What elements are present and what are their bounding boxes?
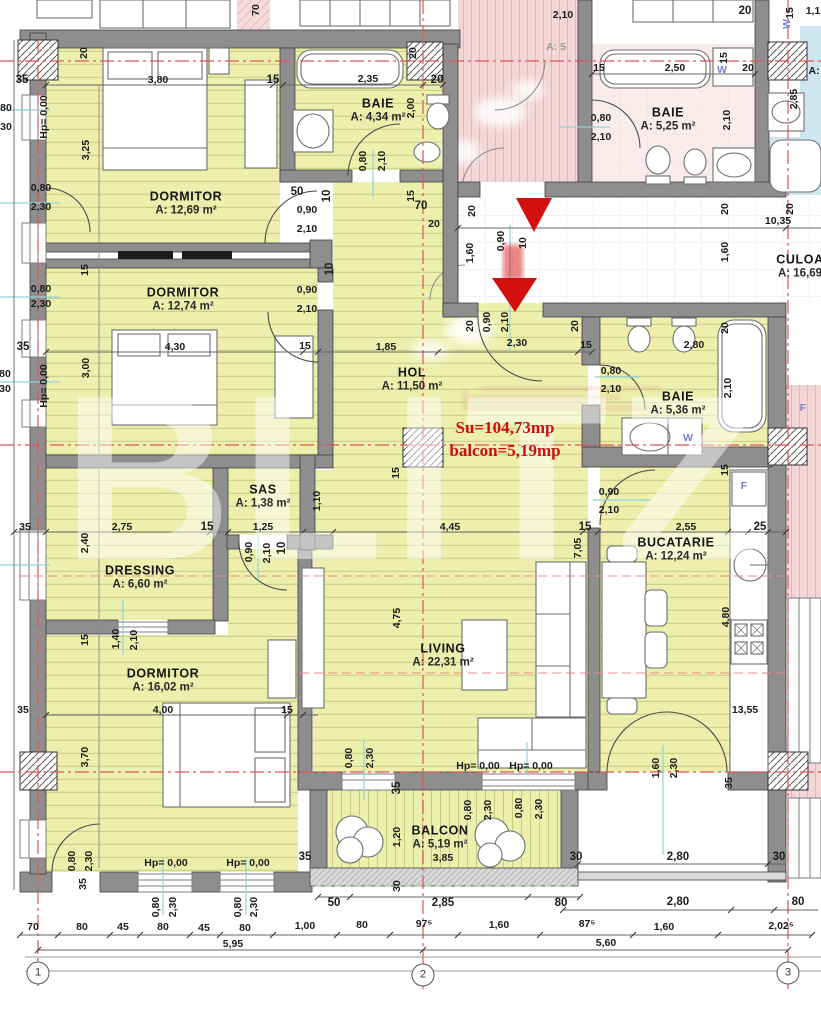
room-area: A: 12,74 m² <box>147 301 220 313</box>
floor-plan: BLITZ Su=104,73mp balcon=5,19mp 35203,80… <box>0 0 821 1024</box>
room-label-dormitor-3: DORMITORA: 16,02 m² <box>127 667 200 694</box>
dimension-label: 30 <box>391 880 403 892</box>
dimension-label: 2,10 <box>721 110 733 130</box>
dimension-label: 4,30 <box>165 341 185 353</box>
dimension-label: Hp= 0,00 <box>456 760 499 772</box>
dimension-label: 1,85 <box>376 341 396 353</box>
dimension-label: 2,30 <box>364 748 376 768</box>
room-area: A: 16,69 <box>776 268 821 280</box>
room-name: SAS <box>236 483 291 497</box>
dimension-label: 25 <box>754 521 767 533</box>
dimension-label: 20 <box>739 5 752 17</box>
dimension-label: Hp= 0,00 <box>509 760 552 772</box>
dimension-label: 2,10 <box>499 312 511 332</box>
dimension-label: 2,10 <box>553 9 573 21</box>
dimension-label: 1,10 <box>311 491 323 511</box>
dimension-label: 20 <box>569 320 581 332</box>
dimension-label: 15 <box>784 7 796 19</box>
dimension-label: 0,80 <box>462 800 474 820</box>
dimension-label: 10 <box>324 263 336 276</box>
dimension-label: 2,10 <box>128 630 140 650</box>
room-name: BAIE <box>641 106 696 120</box>
dimension-label: 13,55 <box>732 704 758 716</box>
dimension-label: 10 <box>517 237 529 249</box>
dimension-label: 2,10 <box>297 223 317 235</box>
dimension-label: 2,85 <box>788 89 800 109</box>
dimension-label: 10,35 <box>765 215 791 227</box>
dimension-label: 70 <box>415 200 428 212</box>
dimension-label: 1,60 <box>654 921 674 933</box>
room-area: A: 5,19 m² <box>411 839 468 851</box>
room-name: DORMITOR <box>127 667 200 681</box>
dimension-label: 0,90 <box>297 204 317 216</box>
dimension-label: W <box>781 19 793 29</box>
dimension-label: 35 <box>16 74 29 86</box>
dimension-label: 0,80 <box>31 283 51 295</box>
dimension-label: 80 <box>555 897 568 909</box>
dimension-label: 50 <box>291 186 304 198</box>
dimension-label: 45 <box>198 922 210 934</box>
dimension-label: 2,30 <box>668 758 680 778</box>
dimension-label: 1,00 <box>295 920 315 932</box>
dimension-label: 2,10 <box>599 504 619 516</box>
dimension-label: 1,60 <box>719 242 731 262</box>
dimension-label: 20 <box>742 62 754 74</box>
room-label-culoar: CULOAA: 16,69 <box>776 253 821 280</box>
dimension-label: 50 <box>328 897 341 909</box>
dimension-label: 15 <box>593 62 605 74</box>
dimension-label: 15 <box>390 467 402 479</box>
dimension-label: 5,60 <box>596 937 616 949</box>
dimension-label: 80 <box>0 368 11 380</box>
dimension-label: 2,40 <box>79 533 91 553</box>
room-label-baie-2: BAIEA: 5,36 m² <box>651 390 706 417</box>
dimension-label: 0,80 <box>513 798 525 818</box>
dimension-label: 0,80 <box>150 897 162 917</box>
dimension-label: 80 <box>76 921 88 933</box>
dimension-label: Hp= 0,00 <box>144 857 187 869</box>
dimension-label: 0,80 <box>31 182 51 194</box>
dimension-label: 2,80 <box>684 339 704 351</box>
dimension-label: F <box>741 480 747 492</box>
dimension-label: 15 <box>579 521 592 533</box>
dimension-label: 15 <box>718 52 730 64</box>
room-label-balcon: BALCONA: 5,19 m² <box>411 824 468 851</box>
dimension-label: 2,35 <box>358 73 378 85</box>
dimension-label: 20 <box>719 322 731 334</box>
dimension-label: 1,60 <box>464 243 476 263</box>
dimension-label: 3,25 <box>80 140 92 160</box>
dimension-label: 0,80 <box>232 897 244 917</box>
room-area: A: 4,34 m² <box>351 112 406 124</box>
dimension-label: 2,55 <box>676 521 696 533</box>
dimension-label: 2,50 <box>665 62 685 74</box>
dimension-label: 1,60 <box>650 758 662 778</box>
dimension-label: Hp= 0,00 <box>226 857 269 869</box>
dimension-label: 15 <box>267 74 280 86</box>
dimension-label: 20 <box>407 47 419 59</box>
dimension-label: 0,90 <box>599 486 619 498</box>
dimension-label: 30 <box>773 851 786 863</box>
dimension-label: 0,90 <box>297 284 317 296</box>
dimension-label: 87⁵ <box>579 918 596 930</box>
dimension-label: 30 <box>0 383 11 395</box>
dimension-label: 2,02⁵ <box>768 920 793 932</box>
total-area-annotation: Su=104,73mp <box>456 418 555 438</box>
grid-axis-bubble-3: 3 <box>777 962 800 985</box>
room-area: A: 5,36 m² <box>651 405 706 417</box>
room-area: A: 6,60 m² <box>105 579 175 591</box>
dimension-label: F <box>800 402 806 414</box>
room-label-bucatarie: BUCATARIEA: 12,24 m² <box>637 536 714 563</box>
dimension-label: 0,90 <box>481 312 493 332</box>
dimension-label: 15 <box>299 340 311 352</box>
dimension-label: 2,80 <box>667 851 689 863</box>
dimension-label: 35 <box>723 777 735 789</box>
dimension-label: 0,80 <box>343 748 355 768</box>
dimension-label: 15 <box>79 634 91 646</box>
dimension-label: 0,80 <box>601 365 621 377</box>
dimension-label: 70 <box>27 921 39 933</box>
room-label-living: LIVINGA: 22,31 m² <box>412 642 473 669</box>
dimension-label: 2,10 <box>601 383 621 395</box>
dimension-label: 15 <box>79 264 91 276</box>
dimension-label: 2,30 <box>507 337 527 349</box>
dimension-label: 2,30 <box>31 201 51 213</box>
dimension-label: 80 <box>157 921 169 933</box>
dimension-label: 1,1 <box>806 5 821 17</box>
dimension-label: 2,30 <box>248 897 260 917</box>
dimension-label: W <box>717 64 727 76</box>
grid-axis-bubble-2: 2 <box>412 964 435 987</box>
dimension-label: 20 <box>466 205 478 217</box>
room-area: A: 5,25 m² <box>641 121 696 133</box>
dimension-label: Hp= 0,00 <box>38 364 50 407</box>
dimension-label: 20 <box>431 74 444 86</box>
dimension-label: 2,10 <box>722 378 734 398</box>
room-name: BUCATARIE <box>637 536 714 550</box>
dimension-label: 1,25 <box>253 521 273 533</box>
dimension-label: 0,80 <box>591 112 611 124</box>
room-area: A: 1,38 m² <box>236 498 291 510</box>
dimension-label: 2,30 <box>533 799 545 819</box>
dimension-label: 4,75 <box>391 608 403 628</box>
dimension-label: 80 <box>356 919 368 931</box>
dimension-label: 2,10 <box>297 303 317 315</box>
dimension-label: 0,80 <box>66 851 78 871</box>
dimension-label: 20 <box>719 203 731 215</box>
room-name: BAIE <box>651 390 706 404</box>
room-label-dormitor-1: DORMITORA: 12,69 m² <box>150 190 223 217</box>
room-name: HOL <box>382 366 443 380</box>
dimension-label: 35 <box>391 782 403 795</box>
dimension-label: 35 <box>17 341 30 353</box>
dimension-label: W <box>683 432 693 444</box>
dimension-label: 2,30 <box>482 800 494 820</box>
dimension-label: 7,05 <box>572 538 584 558</box>
dimension-label: 35 <box>17 704 29 716</box>
balcony-area-annotation: balcon=5,19mp <box>449 441 560 461</box>
dimension-label: 1,60 <box>489 919 509 931</box>
dimension-label: 3,80 <box>148 74 168 86</box>
dimension-label: 30 <box>0 121 12 133</box>
dimension-label: 3,85 <box>433 852 453 864</box>
dimension-label: 2,80 <box>667 896 689 908</box>
dimension-label: 2,00 <box>405 98 417 118</box>
dimension-label: 20 <box>784 203 796 215</box>
dimension-label: 2,10 <box>261 543 273 563</box>
dimension-label: 2,10 <box>591 131 611 143</box>
room-label-dressing: DRESSINGA: 6,60 m² <box>105 564 175 591</box>
dimension-label: 0,80 <box>357 151 369 171</box>
dimension-label: Hp= 0,00 <box>38 95 50 138</box>
room-name: DORMITOR <box>147 286 220 300</box>
dimension-label: 2,30 <box>167 897 179 917</box>
dimension-label: 20 <box>464 320 476 332</box>
dimension-label: 4,00 <box>153 704 173 716</box>
room-label-baie-vecin: BAIEA: 5,25 m² <box>641 106 696 133</box>
dimension-label: 0,90 <box>495 231 507 251</box>
dimension-label: 2,10 <box>376 151 388 171</box>
dimension-label: 3,70 <box>79 747 91 767</box>
dimension-label: 35 <box>19 521 31 533</box>
room-name: BAIE <box>351 97 406 111</box>
room-name: CULOA <box>776 253 821 267</box>
dimension-label: 4,80 <box>720 607 732 627</box>
dimension-label: 2,75 <box>112 521 132 533</box>
dimension-label: 20 <box>428 218 440 230</box>
room-area: A: 16,02 m² <box>127 682 200 694</box>
labels-layer: Su=104,73mp balcon=5,19mp 35203,80152,35… <box>0 0 821 1024</box>
dimension-label: 35 <box>299 851 312 863</box>
grid-axis-bubble-1: 1 <box>27 962 50 985</box>
dimension-label: A: 5 <box>546 41 566 53</box>
dimension-label: 80 <box>0 102 12 114</box>
dimension-label: 5,95 <box>223 938 243 950</box>
dimension-label: 2,85 <box>432 897 454 909</box>
dimension-label: 0,90 <box>243 542 255 562</box>
room-name: LIVING <box>412 642 473 656</box>
room-label-baie-1: BAIEA: 4,34 m² <box>351 97 406 124</box>
dimension-label: 15 <box>201 521 214 533</box>
dimension-label: 10 <box>276 542 288 555</box>
room-area: A: 11,50 m² <box>382 381 443 393</box>
dimension-label: 35 <box>77 878 89 890</box>
dimension-label: 80 <box>792 896 805 908</box>
dimension-label: 70 <box>250 4 262 16</box>
dimension-label: A: <box>808 65 819 77</box>
dimension-label: 80 <box>239 922 251 934</box>
dimension-label: 97⁵ <box>416 918 433 930</box>
room-name: DRESSING <box>105 564 175 578</box>
dimension-label: 15 <box>281 704 293 716</box>
room-label-hol: HOLA: 11,50 m² <box>382 366 443 393</box>
dimension-label: 15 <box>719 464 731 476</box>
room-name: DORMITOR <box>150 190 223 204</box>
dimension-label: 10 <box>321 190 333 203</box>
dimension-label: 3,00 <box>80 358 92 378</box>
room-name: BALCON <box>411 824 468 838</box>
dimension-label: 30 <box>570 851 583 863</box>
dimension-label: 15 <box>580 339 592 351</box>
room-area: A: 22,31 m² <box>412 657 473 669</box>
dimension-label: 4,45 <box>440 521 460 533</box>
dimension-label: 45 <box>117 921 129 933</box>
dimension-label: 20 <box>78 47 90 59</box>
room-area: A: 12,69 m² <box>150 205 223 217</box>
room-area: A: 12,24 m² <box>637 551 714 563</box>
dimension-label: 2,30 <box>31 298 51 310</box>
room-label-sas: SASA: 1,38 m² <box>236 483 291 510</box>
room-label-dormitor-2: DORMITORA: 12,74 m² <box>147 286 220 313</box>
dimension-label: 1,40 <box>110 629 122 649</box>
dimension-label: 1,20 <box>391 827 403 847</box>
dimension-label: 2,30 <box>83 851 95 871</box>
